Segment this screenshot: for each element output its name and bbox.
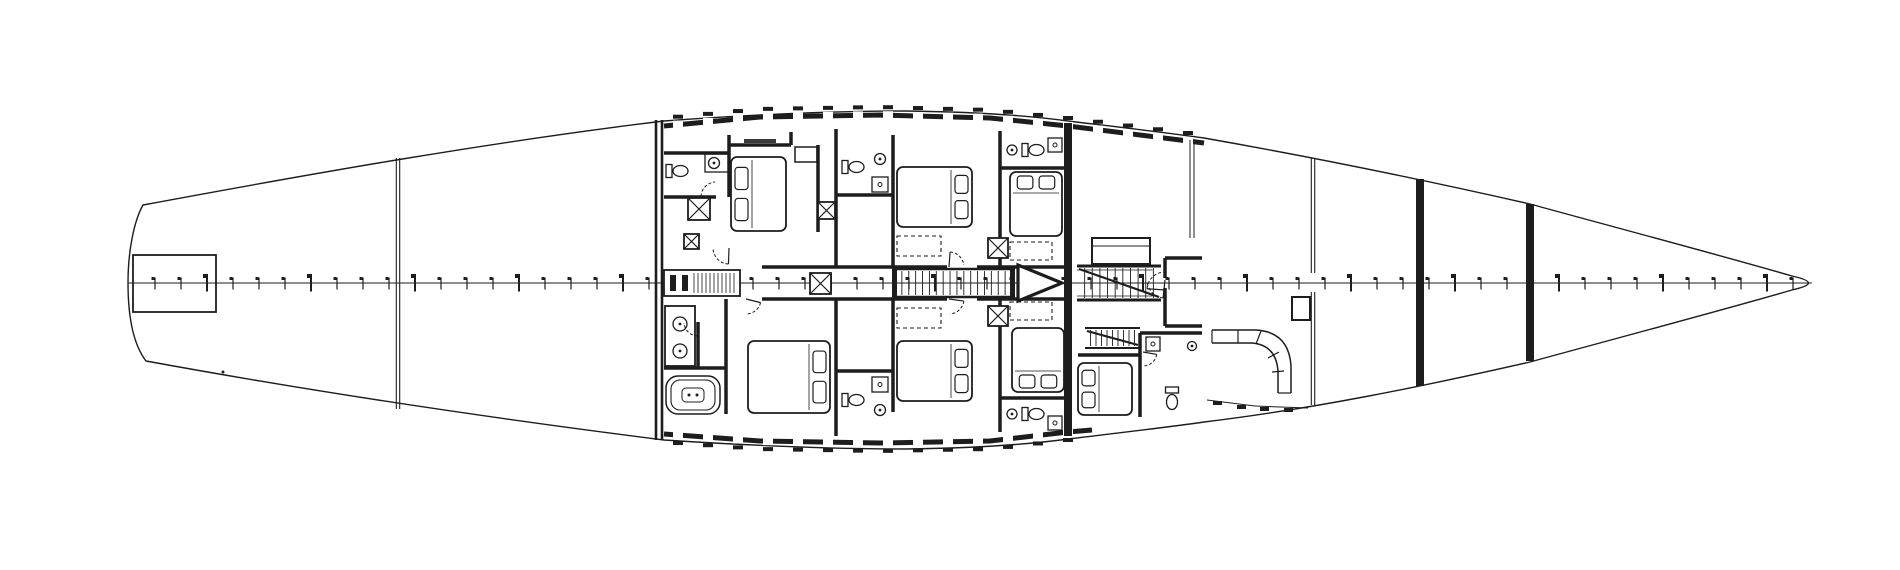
deck-plan-page: Sailing yacht general arrangement drawin… <box>0 0 1900 570</box>
equipment-box <box>664 270 740 296</box>
yacht-deck-plan: Sailing yacht general arrangement drawin… <box>0 0 1900 570</box>
